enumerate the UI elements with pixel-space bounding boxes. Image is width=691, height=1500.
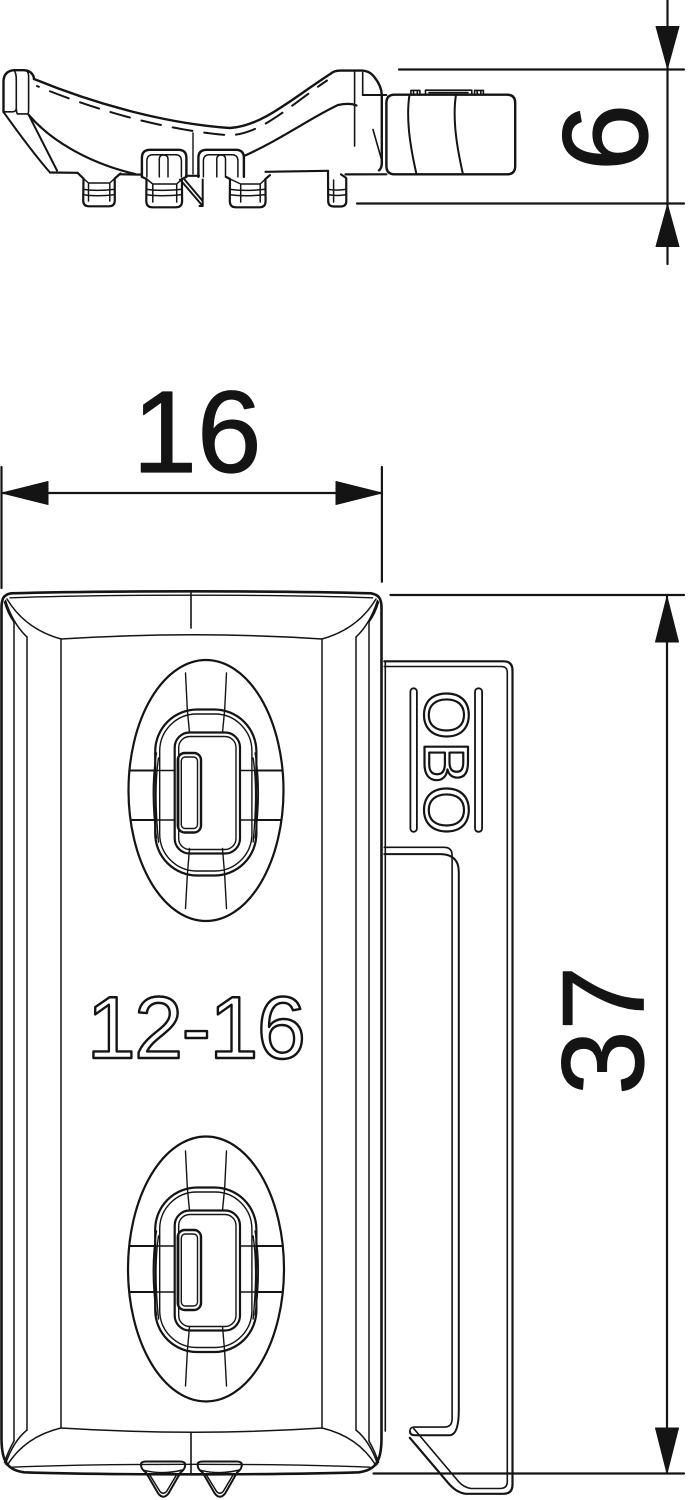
svg-text:16: 16 xyxy=(132,367,261,497)
svg-text:OBO: OBO xyxy=(411,690,481,836)
svg-text:6: 6 xyxy=(537,104,673,171)
svg-text:37: 37 xyxy=(538,966,668,1095)
svg-text:12-16: 12-16 xyxy=(87,978,305,1077)
